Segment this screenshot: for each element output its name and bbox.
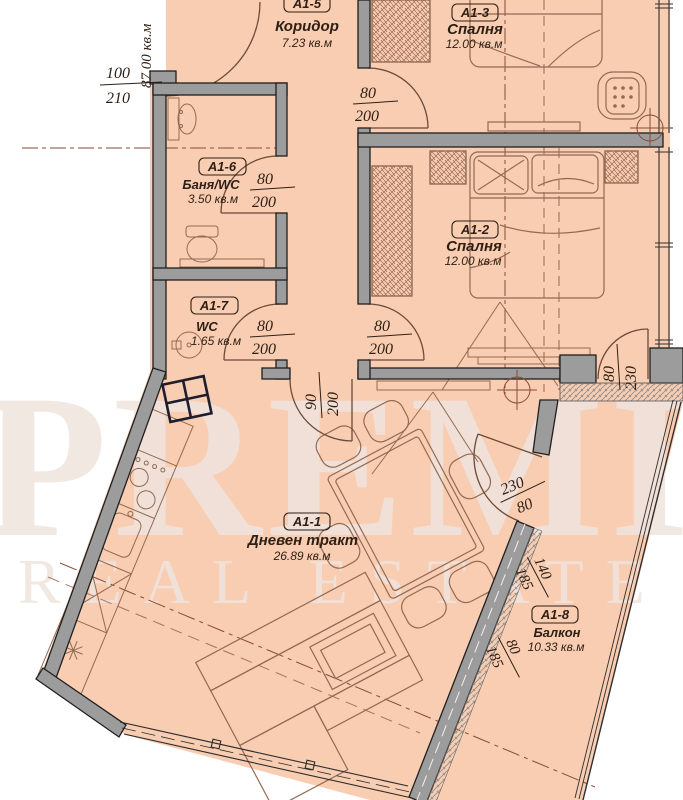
wall-right-small [560, 355, 596, 383]
dim-entrance-h: 210 [106, 90, 130, 107]
wall-bedroom2-west-2 [358, 360, 370, 379]
dim-bedroom2-door-h: 200 [369, 341, 393, 358]
wall-right-L [650, 348, 683, 383]
dim-entrance-w: 100 [106, 65, 130, 82]
room-corridor-area: 7.23 кв.м [282, 36, 332, 50]
room-living-name: Дневен тракт [246, 532, 358, 549]
room-wc-code: А1-7 [199, 298, 229, 313]
dim-bath-door-h: 200 [252, 194, 276, 211]
floor-plan: PREMIER REAL ESTATE [0, 0, 683, 800]
wall-bedroom2-west-1 [358, 128, 370, 304]
room-bathroom-code: А1-6 [207, 159, 237, 174]
room-wc-area: 1.65 кв.м [191, 334, 241, 348]
dim-total-area: 87.00 кв.м [139, 23, 155, 88]
dim-bedroom3-door-h: 200 [355, 108, 379, 125]
dim-bedroom2-balcony-door-w: 80 [601, 366, 618, 382]
room-bedroom2-area: 12.00 кв.м [445, 254, 502, 268]
dim-bedroom2-balcony-door-h: 230 [623, 366, 640, 390]
room-wc-name: WC [196, 319, 218, 334]
insulation-band [560, 383, 683, 401]
room-bedroom2-name: Спалня [446, 238, 502, 255]
dim-bedroom2-door-w: 80 [374, 318, 390, 335]
room-bedroom3-area: 12.00 кв.м [446, 37, 503, 51]
room-bedroom3-name: Спалня [447, 21, 503, 38]
room-balcony-name: Балкон [533, 625, 580, 640]
wardrobe-bedroom2 [372, 166, 412, 296]
room-corridor-name: Коридор [275, 18, 339, 35]
dim-total-area-text: 87.00 кв.м [139, 23, 155, 88]
wall-bath-right-1 [276, 83, 287, 156]
dim-wc-door-w: 80 [257, 318, 273, 335]
wall-south-bedroom2 [358, 368, 560, 379]
wall-corridor-right [358, 0, 370, 68]
room-balcony-code: А1-8 [540, 607, 570, 622]
room-balcony-area: 10.33 кв.м [528, 640, 585, 654]
dim-living-door-h: 200 [325, 392, 342, 416]
room-bedroom3-code: А1-3 [460, 5, 490, 20]
wall-hall-left-stub [262, 368, 290, 379]
dim-wc-door-h: 200 [252, 341, 276, 358]
dim-living-door-w: 90 [303, 394, 320, 410]
floor-plan-drawing: PREMIER REAL ESTATE [0, 0, 683, 800]
wardrobe-bedroom3 [372, 0, 430, 62]
wall-bath-right-2 [276, 213, 287, 304]
dim-bath-door-w: 80 [257, 171, 273, 188]
wall-bath-wc-divider [153, 268, 287, 280]
wall-left [153, 83, 166, 379]
room-corridor-code: А1-5 [292, 0, 322, 11]
wall-bedrooms-divider [358, 133, 663, 147]
room-bathroom-name: Баня/WC [182, 177, 240, 192]
wall-bath-top [153, 83, 287, 95]
room-living-area: 26.89 кв.м [273, 549, 331, 563]
room-bedroom2-code: А1-2 [460, 222, 490, 237]
room-living-code: А1-1 [292, 514, 321, 529]
room-bathroom-area: 3.50 кв.м [188, 192, 238, 206]
dim-bedroom3-door-w: 80 [360, 85, 376, 102]
